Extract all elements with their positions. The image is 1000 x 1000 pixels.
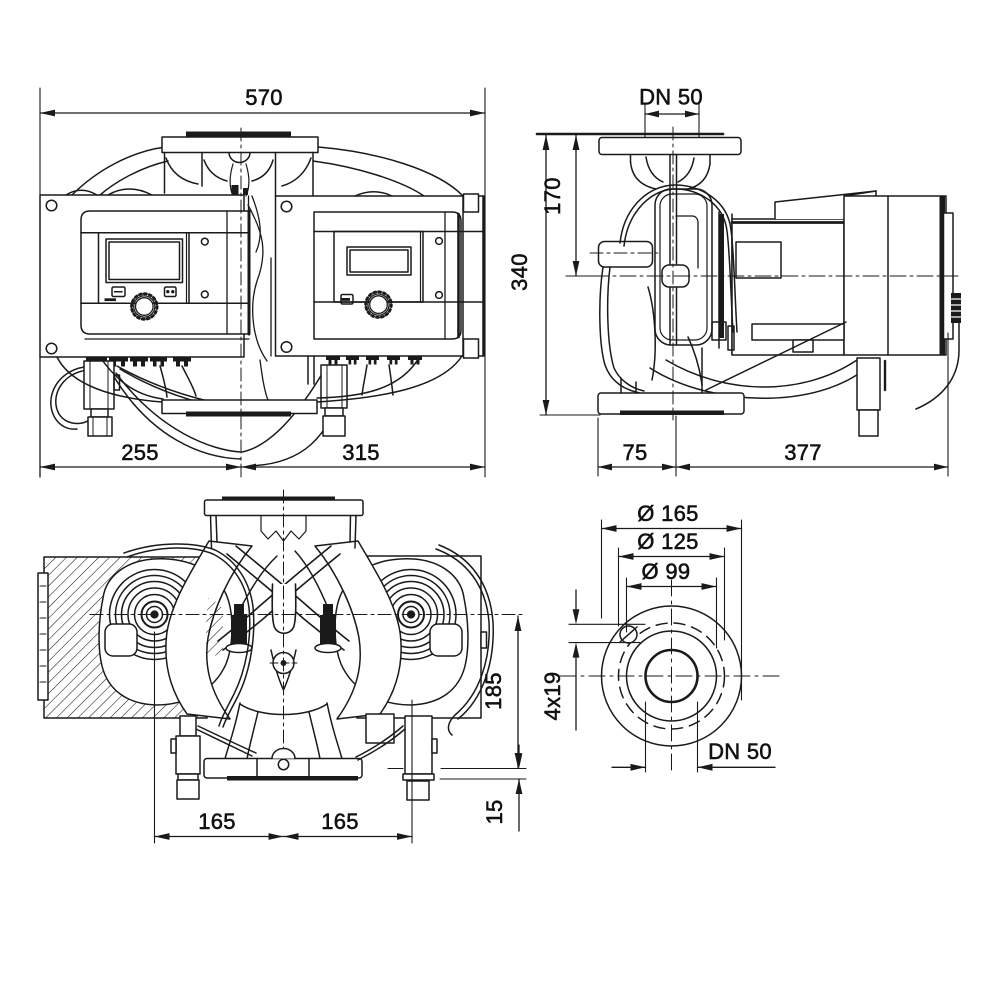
svg-text:DN 50: DN 50: [639, 85, 703, 110]
svg-text:165: 165: [321, 809, 359, 834]
svg-text:Ø 99: Ø 99: [642, 559, 691, 584]
svg-text:315: 315: [342, 440, 380, 465]
svg-text:4x19: 4x19: [540, 672, 565, 721]
svg-text:170: 170: [540, 177, 565, 215]
svg-text:165: 165: [198, 809, 236, 834]
svg-text:DN 50: DN 50: [708, 739, 772, 764]
svg-text:Ø 165: Ø 165: [637, 501, 698, 526]
svg-text:185: 185: [481, 672, 506, 710]
svg-text:15: 15: [482, 799, 507, 824]
svg-text:340: 340: [507, 253, 532, 291]
svg-text:Ø 125: Ø 125: [637, 529, 698, 554]
svg-text:377: 377: [784, 440, 822, 465]
svg-text:570: 570: [245, 85, 283, 110]
svg-text:75: 75: [622, 440, 647, 465]
svg-text:255: 255: [121, 440, 159, 465]
